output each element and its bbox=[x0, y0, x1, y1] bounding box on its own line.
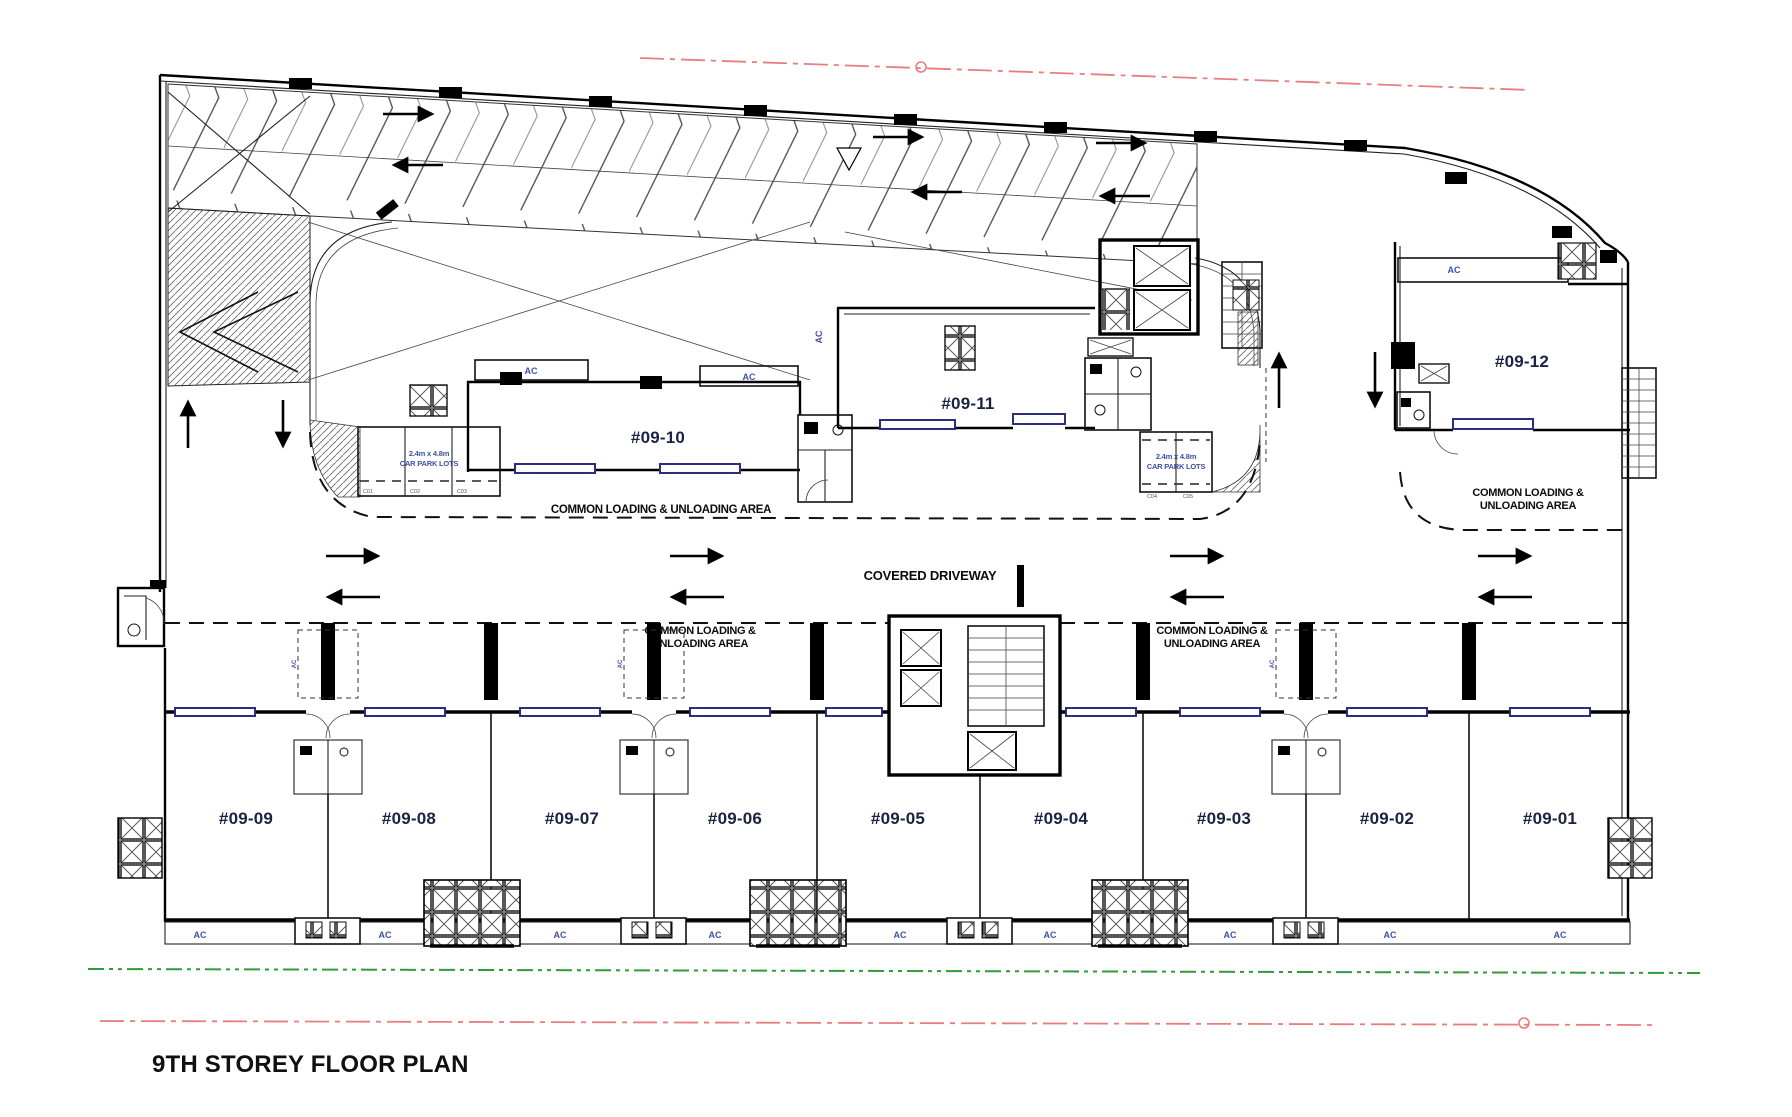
right-loading-area: COMMON LOADING & UNLOADING AREA bbox=[1400, 472, 1626, 530]
boundary-line-red-top bbox=[640, 58, 1530, 90]
carpark-size-label: 2.4m x 4.8m bbox=[1156, 452, 1197, 461]
wc-09-12 bbox=[1397, 392, 1430, 428]
roof-ac-box bbox=[1558, 243, 1596, 279]
carpark-lots-label: CAR PARK LOTS bbox=[1147, 462, 1206, 471]
unit-label-09-07: #09-07 bbox=[545, 809, 599, 828]
common-loading-line2: UNLOADING AREA bbox=[652, 638, 749, 650]
service-shaft bbox=[410, 385, 447, 416]
lot-number: C03 bbox=[457, 489, 467, 495]
unit-label-09-06: #09-06 bbox=[708, 809, 762, 828]
wc-cluster-09-11 bbox=[1085, 338, 1151, 430]
svg-text:AC: AC bbox=[1044, 930, 1057, 940]
carpark-left: 2.4m x 4.8m CAR PARK LOTS C01 C02 C03 bbox=[358, 427, 500, 496]
boundary-marker-circle-top bbox=[916, 62, 926, 72]
lot-number: C05 bbox=[1183, 494, 1193, 500]
ac-condenser-clusters bbox=[424, 880, 1188, 946]
boundary-line-red-bottom bbox=[100, 1021, 1655, 1025]
svg-text:AC: AC bbox=[1384, 930, 1397, 940]
covered-driveway: COVERED DRIVEWAY COMMON LOADING & UNLOAD… bbox=[165, 556, 1630, 650]
svg-text:AC: AC bbox=[1224, 930, 1237, 940]
floor-plan-drawing: AC AC #09-10 AC #09-11 bbox=[0, 0, 1792, 1117]
bottom-ledge-strip: AC AC AC AC AC AC AC AC AC bbox=[118, 818, 1652, 946]
side-ac-box-right bbox=[1608, 818, 1652, 878]
window bbox=[515, 464, 595, 473]
common-loading-line1: COMMON LOADING & bbox=[1156, 625, 1268, 637]
unit-label-09-09: #09-09 bbox=[219, 809, 273, 828]
side-ac-box-left bbox=[118, 818, 162, 878]
svg-text:AC: AC bbox=[379, 930, 392, 940]
window bbox=[660, 464, 740, 473]
lot-number: C01 bbox=[363, 489, 373, 495]
ac-mini-label: AC bbox=[292, 659, 298, 668]
driveway-piers bbox=[321, 623, 1476, 700]
driveway-column bbox=[1017, 565, 1024, 607]
lot-number: C04 bbox=[1147, 494, 1157, 500]
svg-text:AC: AC bbox=[1554, 930, 1567, 940]
common-loading-line2: UNLOADING AREA bbox=[1164, 638, 1261, 650]
common-loading-line1: COMMON LOADING & bbox=[1472, 487, 1584, 499]
stair-lower bbox=[968, 626, 1044, 726]
unit-label-09-08: #09-08 bbox=[382, 809, 436, 828]
svg-text:AC: AC bbox=[194, 930, 207, 940]
covered-driveway-label: COVERED DRIVEWAY bbox=[864, 568, 997, 583]
unit-label-09-04: #09-04 bbox=[1034, 809, 1088, 828]
ac-ledge-label: AC bbox=[743, 372, 756, 382]
unit-label-09-12: #09-12 bbox=[1495, 352, 1549, 371]
ac-ledge-label: AC bbox=[1448, 265, 1461, 275]
carpark-right: 2.4m x 4.8m CAR PARK LOTS C04 C05 bbox=[1140, 432, 1212, 500]
unit-label-09-02: #09-02 bbox=[1360, 809, 1414, 828]
unit-label-09-11: #09-11 bbox=[941, 394, 994, 413]
ac-ledge bbox=[1398, 258, 1568, 282]
drawing-title: 9TH STOREY FLOOR PLAN bbox=[152, 1051, 469, 1078]
ac-mini-label: AC bbox=[814, 330, 824, 343]
boundary-line-green bbox=[88, 969, 1700, 973]
common-loading-line2: UNLOADING AREA bbox=[1480, 500, 1577, 512]
carpark-size-label: 2.4m x 4.8m bbox=[409, 449, 450, 458]
floor-plan-page: AC AC #09-10 AC #09-11 bbox=[0, 0, 1792, 1117]
ramp-zone bbox=[168, 78, 1572, 386]
unit-label-09-10: #09-10 bbox=[631, 428, 685, 447]
unit-09-12: AC #09-12 bbox=[1391, 242, 1656, 478]
ac-mini-label: AC bbox=[618, 659, 624, 668]
common-loading-label: COMMON LOADING & UNLOADING AREA bbox=[551, 504, 771, 516]
unit-front-windows bbox=[175, 708, 1590, 716]
unit-label-09-03: #09-03 bbox=[1197, 809, 1251, 828]
carpark-lots-label: CAR PARK LOTS bbox=[400, 459, 459, 468]
window bbox=[1013, 414, 1065, 424]
common-loading-line1: COMMON LOADING & bbox=[644, 625, 756, 637]
ac-mini-label: AC bbox=[1270, 659, 1276, 668]
svg-text:AC: AC bbox=[709, 930, 722, 940]
lower-units: AC AC AC bbox=[165, 623, 1630, 920]
window bbox=[1453, 419, 1533, 429]
riser-shaft bbox=[945, 326, 975, 370]
window bbox=[880, 420, 955, 429]
ac-ledge-label: AC bbox=[525, 366, 538, 376]
lift-core-lower bbox=[889, 616, 1060, 775]
unit-label-09-05: #09-05 bbox=[871, 809, 925, 828]
svg-text:AC: AC bbox=[554, 930, 567, 940]
unit-label-09-01: #09-01 bbox=[1523, 809, 1577, 828]
lot-number: C02 bbox=[410, 489, 420, 495]
svg-text:AC: AC bbox=[894, 930, 907, 940]
boundary-marker-circle-bottom bbox=[1519, 1018, 1529, 1028]
bottom-ac-labels: AC AC AC AC AC AC AC AC AC bbox=[194, 930, 1567, 940]
